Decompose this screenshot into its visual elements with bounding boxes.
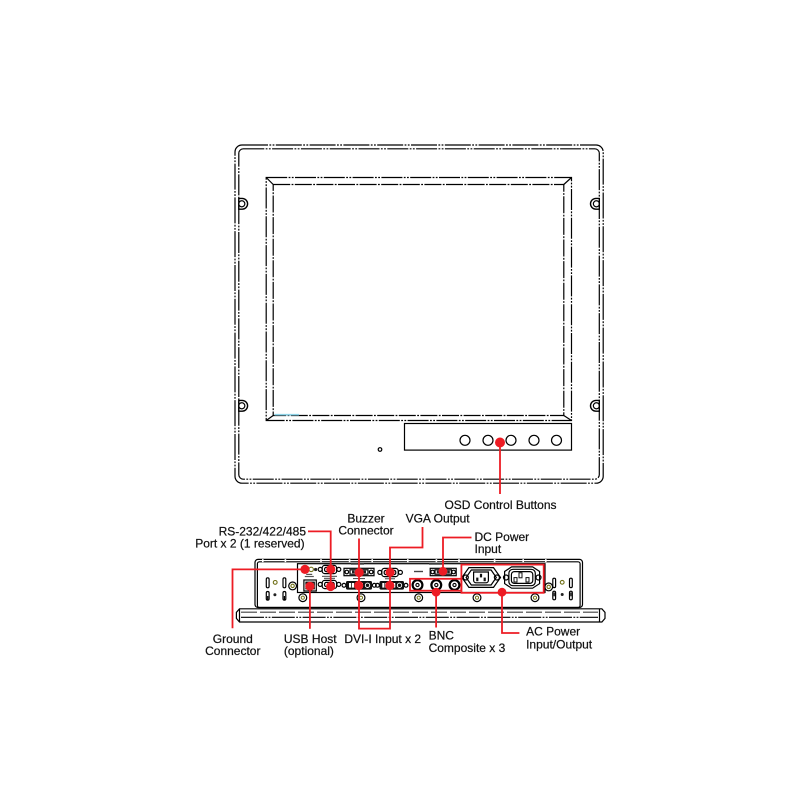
svg-text:Port x 2 (1 reserved): Port x 2 (1 reserved): [195, 536, 304, 550]
svg-text:Input: Input: [475, 542, 502, 556]
svg-text:Composite x 3: Composite x 3: [429, 641, 506, 655]
svg-text:(optional): (optional): [284, 644, 334, 658]
svg-text:OSD Control Buttons: OSD Control Buttons: [444, 498, 556, 512]
svg-text:Connector: Connector: [205, 644, 260, 658]
svg-text:Input/Output: Input/Output: [526, 637, 593, 651]
svg-text:Connector: Connector: [338, 524, 393, 538]
svg-text:VGA Output: VGA Output: [406, 512, 471, 526]
svg-text:DVI-I Input x 2: DVI-I Input x 2: [344, 632, 421, 646]
